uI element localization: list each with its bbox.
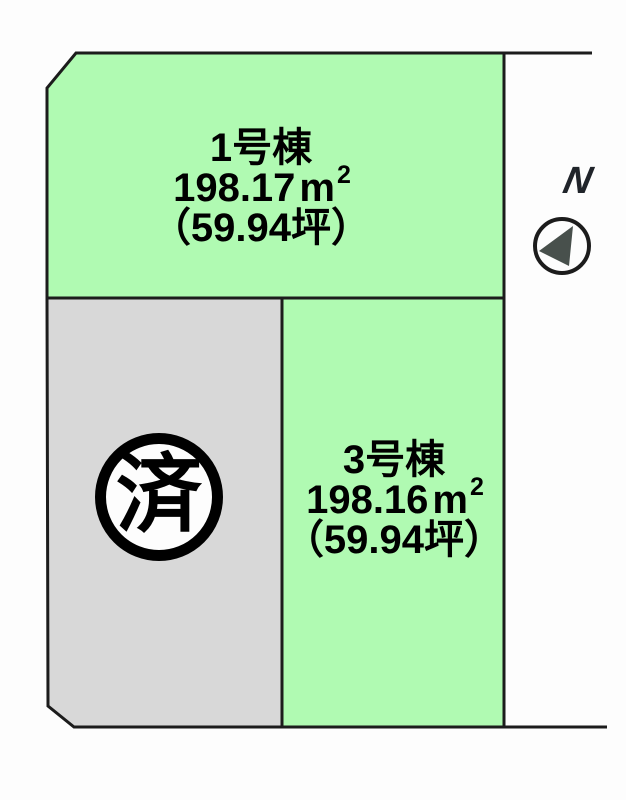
sold-stamp-text: 済 [116, 452, 202, 538]
site-plan: 1号棟 198.17m2 （59.94坪） 3号棟 198.16m2 （59.9… [0, 0, 626, 800]
lot3-area: 198.16m2 [246, 480, 542, 520]
lot1-tsubo: （59.94坪） [111, 208, 411, 248]
lot3-name: 3号棟 [246, 440, 542, 480]
site-plan-drawing [0, 0, 626, 800]
lot1-area: 198.17m2 [111, 168, 411, 208]
lot1-label: 1号棟 198.17m2 （59.94坪） [111, 128, 411, 248]
lot1-name: 1号棟 [111, 128, 411, 168]
compass-icon [535, 219, 589, 273]
lot3-label: 3号棟 198.16m2 （59.94坪） [246, 440, 542, 560]
lot3-tsubo: （59.94坪） [246, 520, 542, 560]
sold-stamp-badge: 済 [95, 433, 223, 561]
